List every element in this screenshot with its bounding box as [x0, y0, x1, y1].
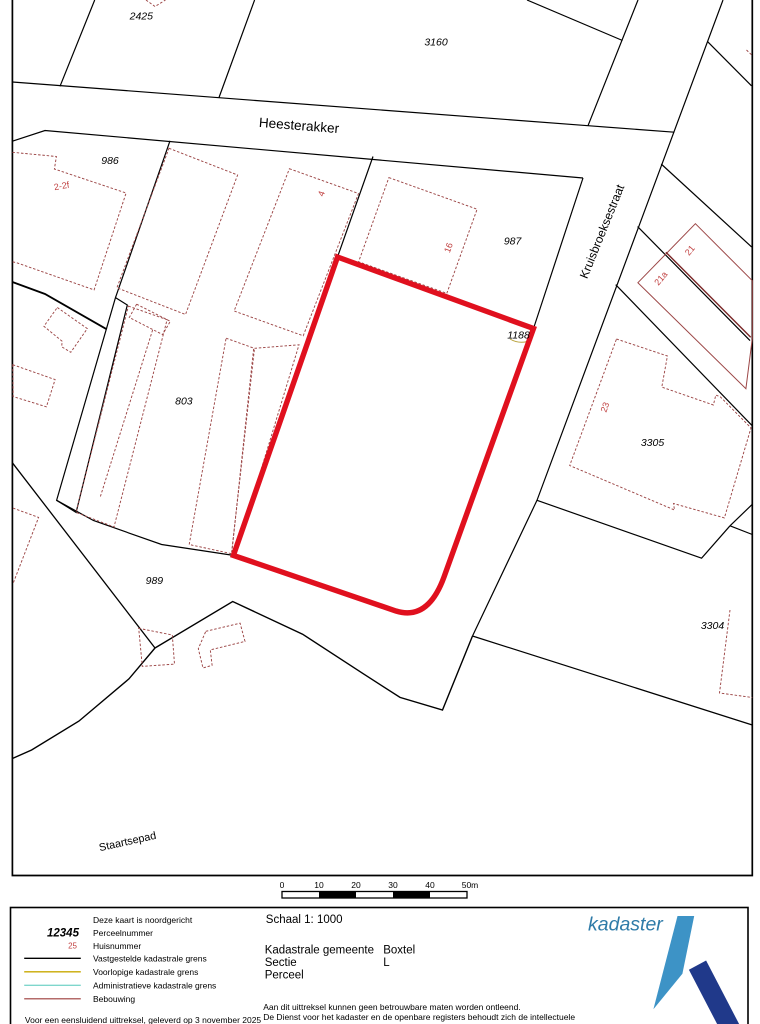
svg-text:kadaster: kadaster [588, 914, 664, 936]
svg-text:1188: 1188 [507, 330, 530, 342]
svg-text:L: L [383, 957, 390, 969]
svg-text:Vastgestelde kadastrale grens: Vastgestelde kadastrale grens [93, 954, 207, 964]
svg-text:40: 40 [425, 880, 435, 890]
svg-text:De Dienst voor het kadaster en: De Dienst voor het kadaster en de openba… [263, 1012, 575, 1022]
svg-text:Boxtel: Boxtel [383, 945, 415, 957]
svg-text:987: 987 [504, 236, 523, 248]
svg-text:Huisnummer: Huisnummer [93, 941, 141, 951]
svg-text:Voorlopige kadastrale grens: Voorlopige kadastrale grens [93, 967, 198, 977]
svg-text:3304: 3304 [701, 620, 725, 632]
svg-text:20: 20 [351, 880, 361, 890]
svg-text:Heesterakker: Heesterakker [258, 115, 340, 136]
svg-text:4: 4 [316, 190, 327, 198]
svg-text:21: 21 [683, 243, 697, 257]
svg-text:10: 10 [314, 880, 324, 890]
svg-text:803: 803 [175, 396, 193, 408]
svg-text:Administratieve kadastrale gre: Administratieve kadastrale grens [93, 981, 216, 991]
svg-text:2425: 2425 [129, 11, 154, 23]
svg-text:25: 25 [68, 942, 77, 951]
svg-text:2-2f: 2-2f [53, 180, 71, 193]
svg-text:Perceel: Perceel [265, 970, 304, 982]
svg-text:Schaal 1: 1000: Schaal 1: 1000 [266, 914, 343, 926]
svg-text:986: 986 [101, 155, 119, 167]
svg-text:16: 16 [442, 241, 455, 254]
svg-text:Perceelnummer: Perceelnummer [93, 928, 153, 938]
svg-text:Kadastrale gemeente: Kadastrale gemeente [265, 945, 374, 957]
svg-text:Sectie: Sectie [265, 957, 297, 969]
svg-text:989: 989 [146, 575, 164, 587]
svg-text:Bebouwing: Bebouwing [93, 994, 135, 1004]
svg-text:Deze kaart is noordgericht: Deze kaart is noordgericht [93, 915, 193, 925]
svg-text:Aan dit uittreksel kunnen geen: Aan dit uittreksel kunnen geen betrouwba… [263, 1002, 521, 1012]
svg-text:Voor een eensluidend uittrekse: Voor een eensluidend uittreksel, gelever… [25, 1015, 262, 1024]
svg-text:12345: 12345 [47, 928, 80, 940]
svg-text:50m: 50m [462, 880, 479, 890]
svg-text:Staartsepad: Staartsepad [98, 830, 157, 854]
svg-text:3305: 3305 [641, 437, 665, 449]
svg-text:30: 30 [388, 880, 398, 890]
svg-text:3160: 3160 [424, 37, 448, 49]
svg-text:0: 0 [280, 880, 285, 890]
svg-text:23: 23 [599, 401, 612, 414]
svg-text:21a: 21a [652, 269, 669, 287]
svg-text:Kruisbroeksestraat: Kruisbroeksestraat [577, 182, 628, 281]
